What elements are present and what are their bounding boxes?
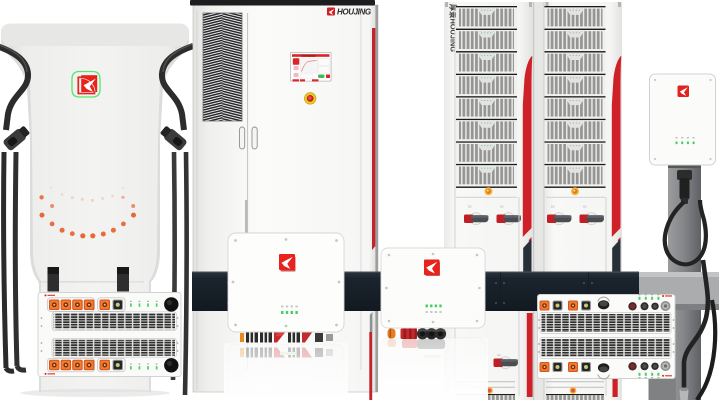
svg-text:AC: AC: [500, 205, 504, 209]
svg-text:HOUJING: HOUJING: [337, 8, 371, 17]
svg-text:AC: AC: [497, 353, 501, 357]
svg-text:DC: DC: [551, 205, 555, 209]
svg-text:AC: AC: [583, 205, 587, 209]
svg-text:DC: DC: [468, 205, 472, 209]
